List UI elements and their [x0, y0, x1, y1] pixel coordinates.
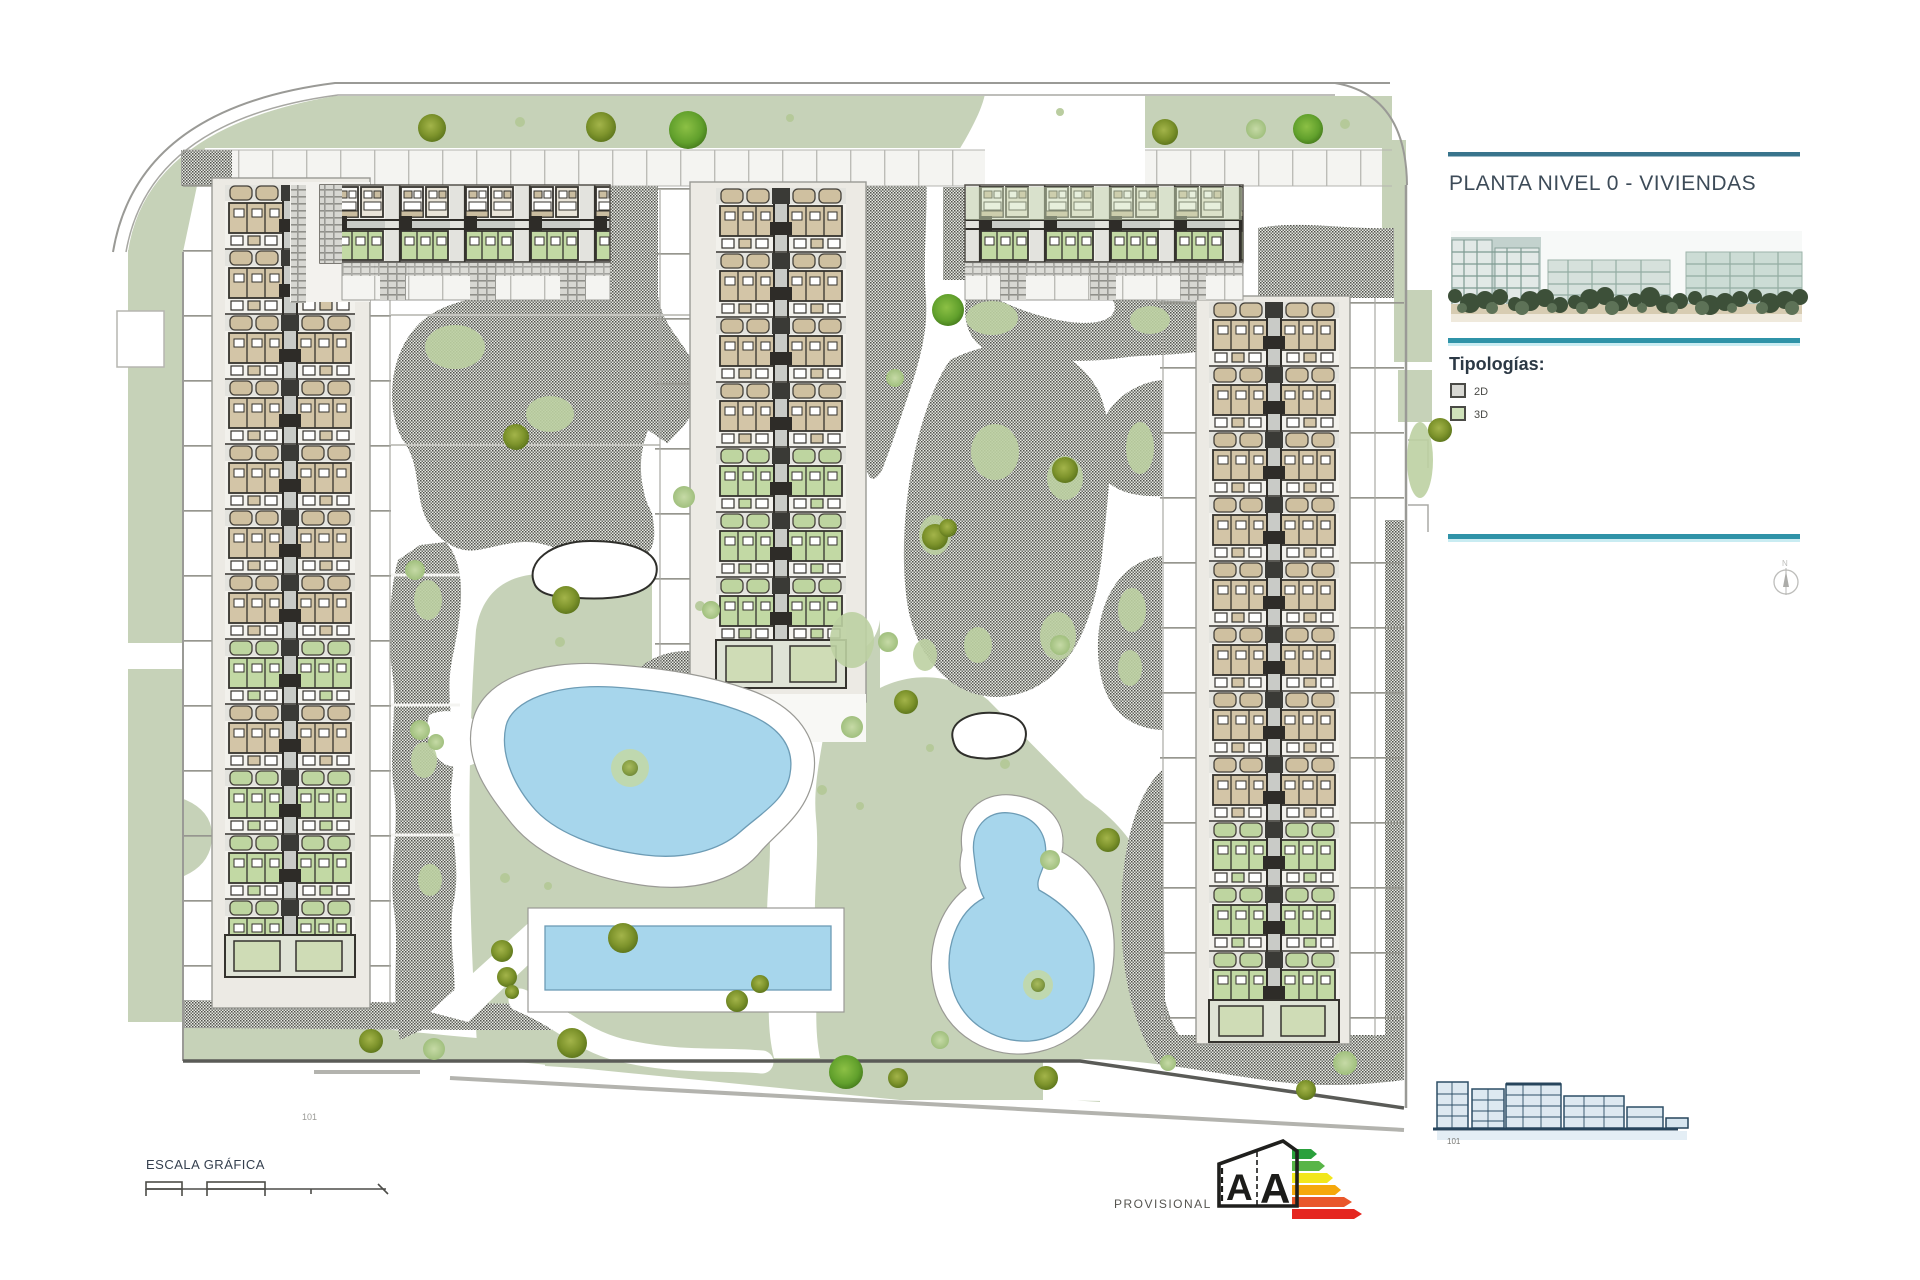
- svg-text:N: N: [1782, 559, 1788, 568]
- svg-text:ESCALA GRÁFICA: ESCALA GRÁFICA: [146, 1157, 265, 1172]
- svg-text:3D: 3D: [1474, 409, 1488, 421]
- svg-text:Tipologías:: Tipologías:: [1449, 354, 1545, 374]
- svg-text:A: A: [1226, 1167, 1253, 1208]
- svg-text:PROVISIONAL: PROVISIONAL: [1114, 1197, 1212, 1211]
- svg-text:101: 101: [302, 1112, 317, 1122]
- svg-text:A: A: [1260, 1165, 1290, 1212]
- svg-text:2D: 2D: [1474, 386, 1488, 398]
- svg-text:101: 101: [1447, 1137, 1461, 1146]
- svg-text:PLANTA NIVEL 0 - VIVIENDAS: PLANTA NIVEL 0 - VIVIENDAS: [1449, 172, 1756, 195]
